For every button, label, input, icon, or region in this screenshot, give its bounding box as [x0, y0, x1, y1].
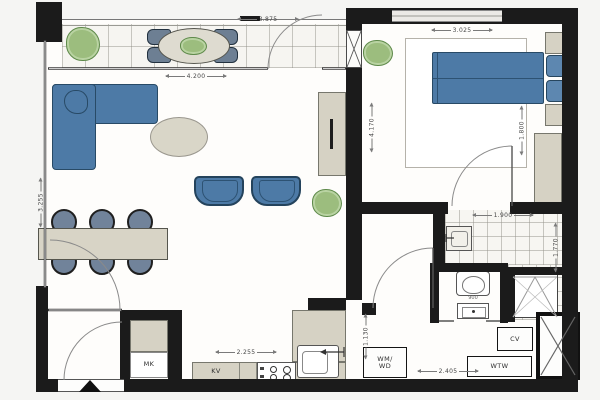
dining-table: [38, 228, 168, 260]
toilet: [456, 271, 490, 296]
wall: [168, 310, 182, 392]
dim-wc-width: 900: [460, 295, 486, 301]
entrance-arrow: [79, 380, 101, 392]
kitchen-sink: [297, 345, 339, 378]
dim-bed-zone: 1.800: [519, 107, 526, 155]
wall: [430, 263, 508, 272]
dim-balcony-width: 3.875: [238, 16, 298, 23]
nightstand: [545, 104, 563, 126]
dim-bathroom-depth: 1.770: [553, 224, 560, 272]
wall: [36, 2, 62, 42]
wc-cabinet: [457, 303, 489, 319]
central-heating-unit: CV: [497, 327, 533, 351]
cabinet-handle: [330, 119, 333, 149]
bedroom-wardrobe: [534, 133, 562, 205]
washer-dryer: WM/ WD: [363, 347, 407, 378]
wall: [308, 298, 346, 310]
floor-plan: KV MK WM/ WD CV WTW: [0, 0, 600, 400]
bedroom-balcony-glazing: [346, 30, 362, 68]
meter-cupboard-label: MK: [130, 361, 168, 368]
fridge-label: KV: [196, 368, 236, 375]
washer-dryer-label: WM/ WD: [377, 356, 392, 370]
dim-hall-depth: 1.130: [363, 315, 370, 359]
dim-bedroom-width: 3.025: [432, 27, 492, 34]
ventilation-label: WTW: [490, 363, 508, 370]
round-rug: [150, 117, 208, 157]
armchair: [251, 176, 301, 206]
dim-bathroom-width: 1.900: [473, 212, 533, 219]
wall: [36, 286, 48, 379]
bedroom-plant: [363, 40, 393, 66]
storage-closet: [130, 320, 168, 352]
balcony-railing: [62, 19, 352, 26]
potted-plant: [66, 27, 100, 61]
dim-living-depth: 3.255: [38, 179, 45, 227]
wall: [562, 8, 578, 392]
central-heating-label: CV: [510, 336, 520, 343]
wall: [346, 8, 362, 30]
wall: [120, 310, 130, 379]
dim-hall-width: 2.405: [418, 368, 478, 375]
nightstand: [545, 32, 563, 54]
bedroom-window: [392, 10, 502, 22]
sofa-cushion: [64, 90, 88, 114]
wall: [346, 68, 362, 300]
wall: [433, 203, 445, 267]
bed: [432, 52, 544, 104]
dim-kitchen-width: 2.255: [216, 349, 276, 356]
armchair: [194, 176, 244, 206]
tv-cabinet: [318, 92, 346, 176]
living-plant: [312, 189, 342, 217]
dim-bedroom-depth: 4.170: [369, 104, 376, 152]
washbasin: [446, 226, 472, 251]
wall: [430, 263, 439, 323]
table-plant: [180, 37, 207, 55]
dim-living-width: 4.200: [166, 73, 226, 80]
wall: [506, 267, 515, 322]
